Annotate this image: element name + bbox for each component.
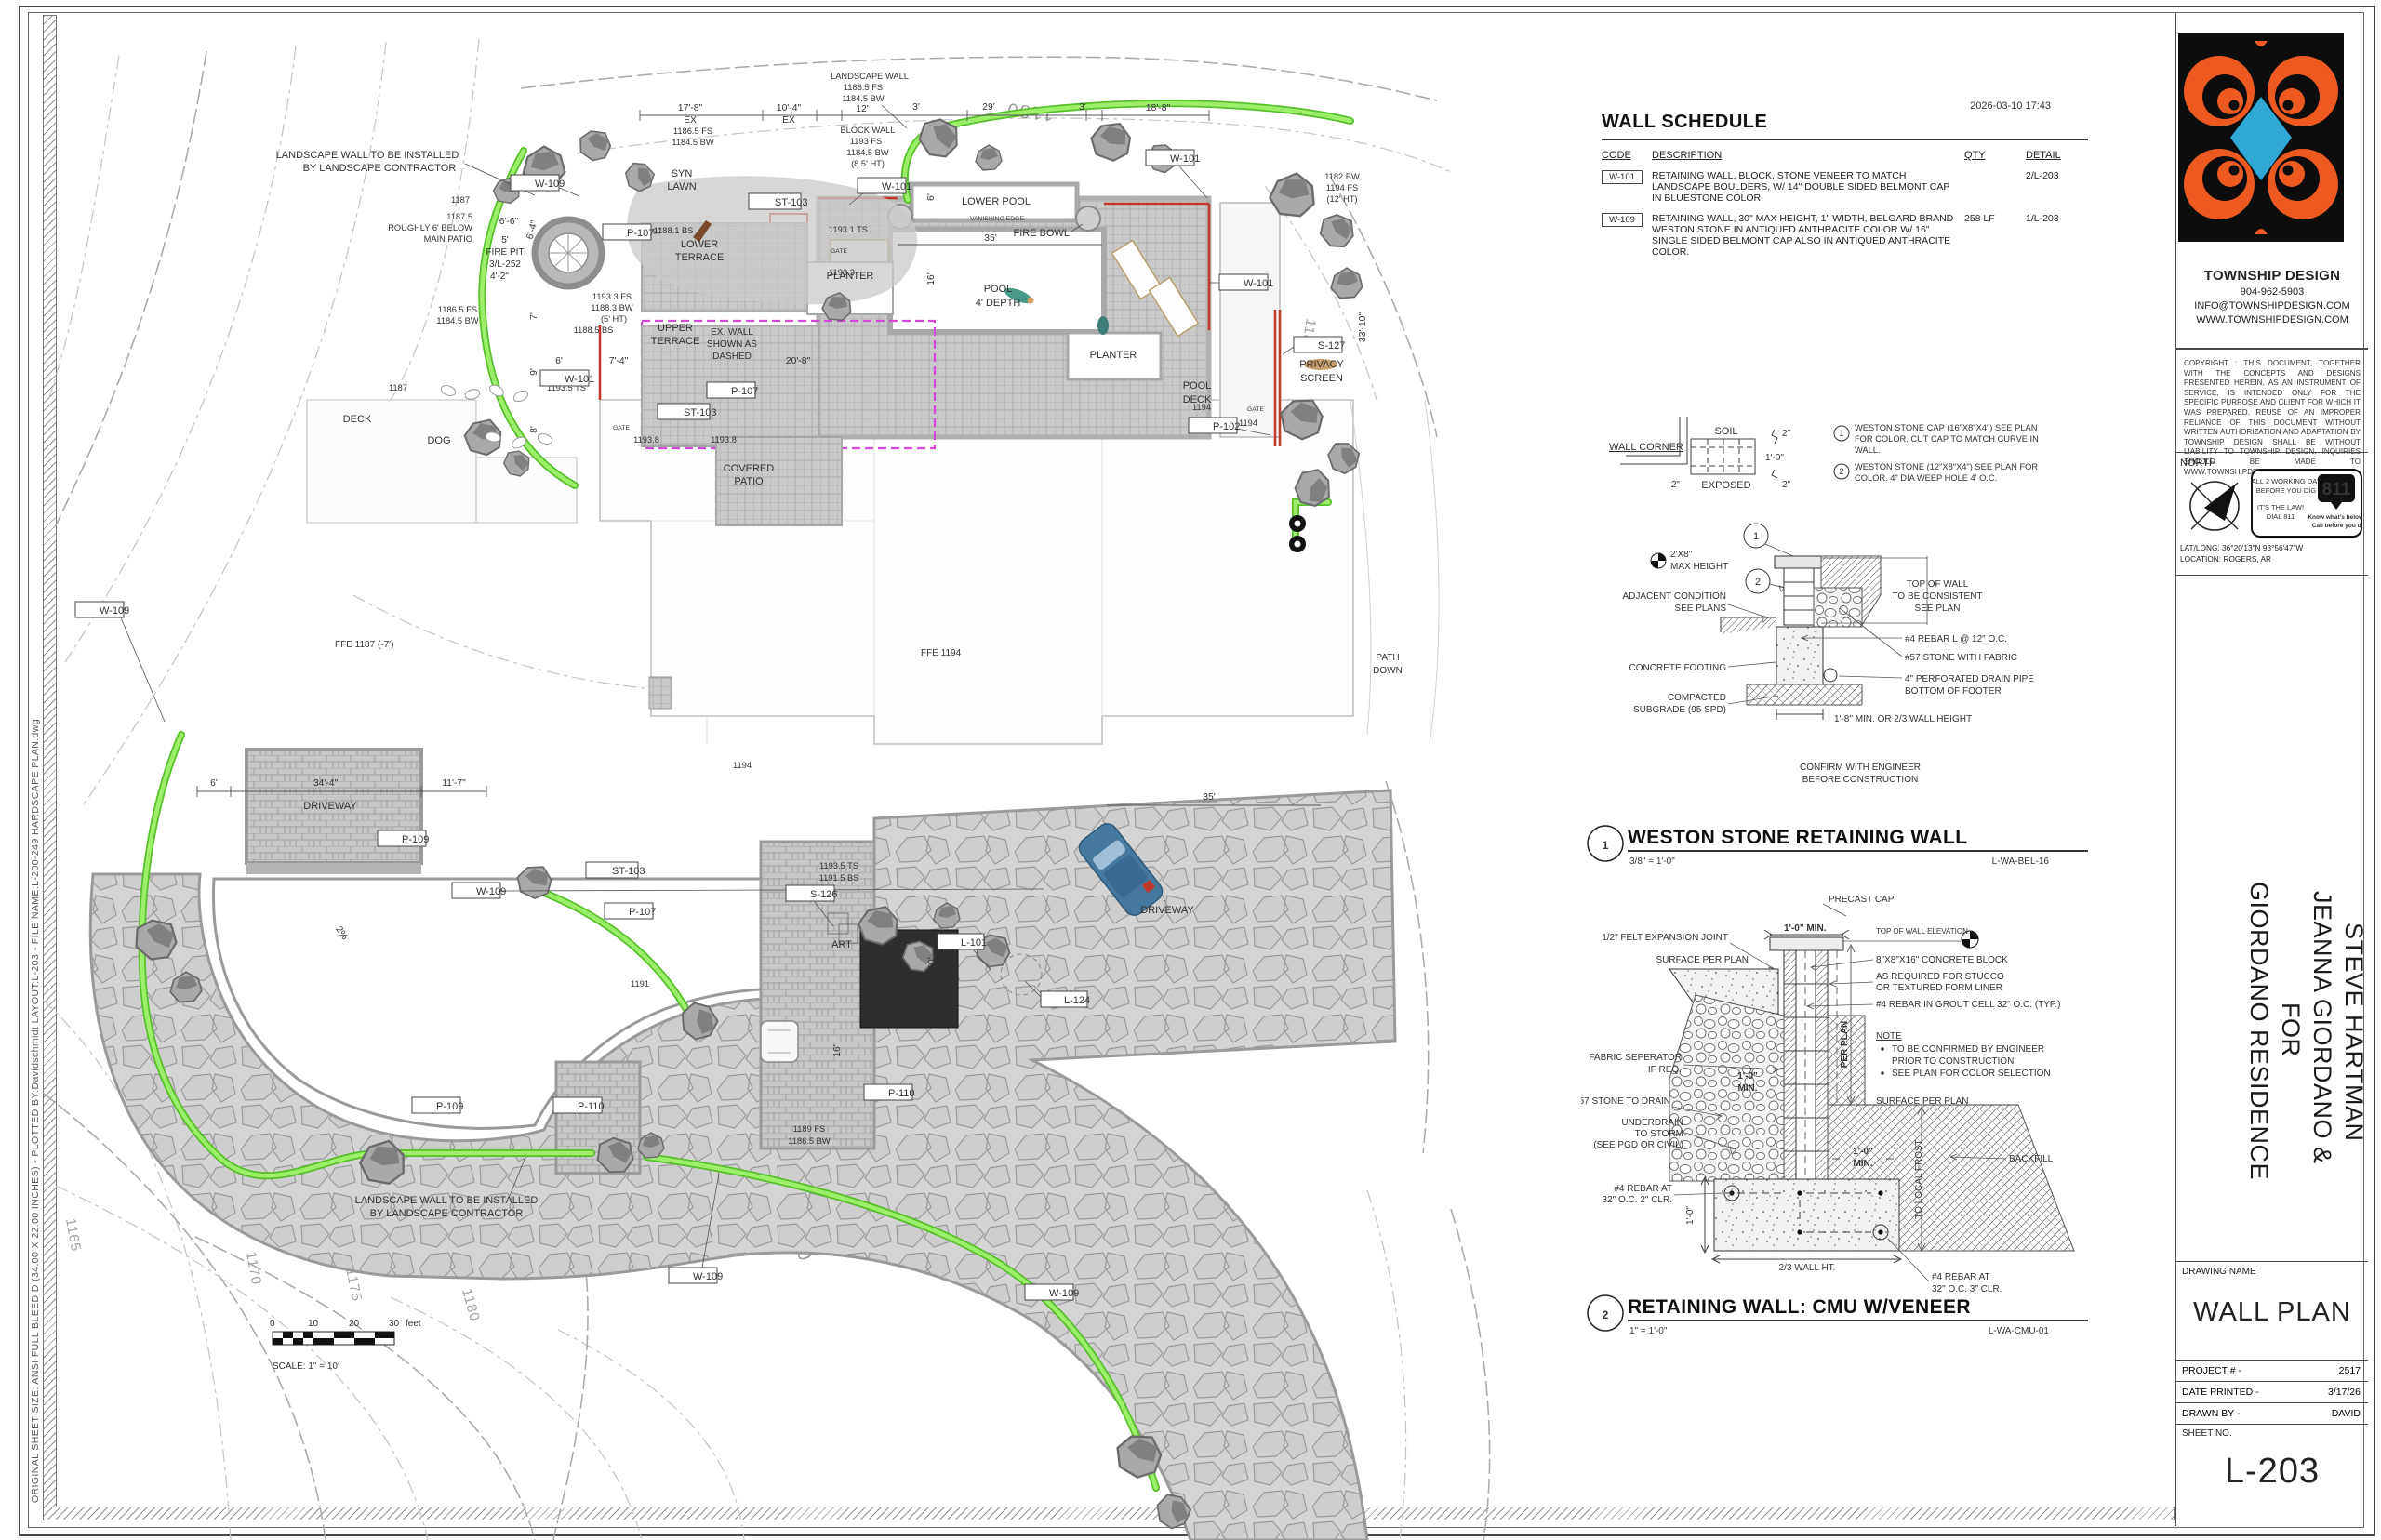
fire-pit-label: FIRE PIT	[486, 247, 524, 258]
label: SURFACE PER PLAN	[1656, 955, 1749, 965]
detail-scale: 3/8" = 1'-0"	[1629, 856, 1675, 867]
label: MIN.	[1737, 1083, 1757, 1094]
dim-label: 20'-8"	[786, 356, 811, 366]
dim-label: 35'	[1203, 792, 1215, 803]
label: 1'-0" MIN.	[1784, 923, 1827, 934]
area-label: SYN	[672, 168, 693, 179]
elev-label: 1184.5 BW	[436, 316, 479, 325]
note-text: WESTON STONE (12"X8"X4") SEE PLAN FOR	[1855, 462, 2038, 471]
area-label: UPPER	[658, 323, 693, 334]
label: BEFORE CONSTRUCTION	[1802, 775, 1918, 785]
dim-label: 1'-0"	[1765, 453, 1784, 463]
label: 1'-0"	[1737, 1071, 1758, 1082]
label: TO STORM	[1635, 1129, 1683, 1139]
label: CONFIRM WITH ENGINEER	[1800, 763, 1921, 773]
elev-label: 1186.5 FS	[438, 305, 477, 314]
landscape-wall-note: BY LANDSCAPE CONTRACTOR	[303, 163, 457, 174]
fire-bowl	[1076, 206, 1100, 231]
dim-label: 9'	[529, 368, 539, 376]
label: TO BE CONSISTENT	[1892, 591, 1982, 602]
elev-label: ROUGHLY 6' BELOW	[388, 223, 472, 232]
cmu-wall-detail: PRECAST CAP 1'-0" MIN. TOP OF WALL ELEVA…	[1581, 895, 2074, 1294]
wall-corner-detail: WALL CORNER SOIL EXPOSED 2" 1'-0" 2" 2" …	[1609, 417, 2039, 491]
dim-label: EX	[684, 115, 697, 126]
dim-label: 8'	[529, 426, 539, 433]
detail2-heading: 2 RETAINING WALL: CMU W/VENEER 1" = 1'-0…	[1588, 1295, 2088, 1336]
call-line: BEFORE YOU DIG	[2256, 486, 2317, 495]
row-detail: 1/L-203	[2026, 213, 2088, 258]
call-line: CALL 2 WORKING DAYS	[2251, 477, 2326, 485]
copyright-block: COPYRIGHT : THIS DOCUMENT, TOGETHER WITH…	[2176, 352, 2368, 453]
tag-p109[interactable]: P-109	[402, 834, 429, 845]
label: SUBGRADE (95 SPD)	[1633, 705, 1726, 715]
white-car	[761, 1021, 798, 1062]
tag-p107[interactable]: P-107	[731, 386, 758, 397]
callout-2: 2	[1755, 577, 1761, 588]
area-label: DECK	[343, 414, 372, 425]
elev-label: (5' HT)	[601, 314, 627, 324]
tag-p110[interactable]: P-110	[888, 1088, 915, 1099]
area-label: ART	[831, 939, 852, 950]
tag-st103[interactable]: ST-103	[684, 407, 716, 418]
note-text: COLOR. 4" DIA WEEP HOLE 4' O.C.	[1855, 473, 1997, 483]
tag-l101[interactable]: L-101	[961, 937, 987, 949]
label: TOP OF WALL ELEVATION	[1876, 927, 1968, 936]
driveway-flagstone	[90, 790, 1395, 1540]
tag-st103[interactable]: ST-103	[775, 197, 807, 208]
area-label: LOWER	[681, 239, 718, 250]
detail-number: 2	[1603, 1308, 1609, 1321]
area-label: DOG	[427, 435, 450, 446]
area-label: COVERED	[724, 463, 774, 474]
note-label: SHOWN AS	[707, 339, 757, 350]
area-label: LAWN	[667, 181, 696, 192]
label: PRECAST CAP	[1829, 895, 1895, 905]
label: IF REQ.	[1648, 1065, 1682, 1075]
elev-label: 1191.5 BS	[819, 873, 859, 883]
label: #57 STONE TO DRAIN	[1581, 1096, 1670, 1107]
note-text: FOR COLOR. CUT CAP TO MATCH CURVE IN	[1855, 434, 2039, 444]
col-description: DESCRIPTION	[1652, 150, 1957, 161]
contour-label: 1165	[62, 1217, 84, 1254]
dim-label: EX	[782, 115, 795, 126]
dim-label: 2"	[1671, 480, 1681, 490]
dim-label: 10'-4"	[777, 103, 802, 113]
tag-w109[interactable]: W-109	[535, 179, 565, 190]
area-label: 4' DEPTH	[976, 298, 1021, 309]
detail-title: WESTON STONE RETAINING WALL	[1628, 827, 1967, 848]
sheet-number-section: SHEET NO. L-203	[2176, 1424, 2368, 1526]
elev-label: MAIN PATIO	[424, 234, 472, 244]
scale-tick: 20	[349, 1319, 360, 1329]
scale-tick: 10	[308, 1319, 319, 1329]
client-name-line: GIORDANO RESIDENCE	[2244, 882, 2273, 1180]
detail-scale: 1" = 1'-0"	[1629, 1326, 1668, 1336]
elev-label: 1187	[389, 383, 407, 392]
elev-label: 1193.5 TS	[819, 861, 858, 870]
weston-stone-detail: 1 2 2'X8" MAX HEIGHT ADJACENT CONDITION …	[1623, 524, 2035, 785]
drawing-name: WALL PLAN	[2176, 1297, 2368, 1328]
label: 1'-0"	[1685, 1206, 1696, 1225]
label: SEE PLANS	[1674, 604, 1726, 614]
scale-tick: 30	[389, 1319, 400, 1329]
tag-l124[interactable]: L-124	[1064, 995, 1090, 1006]
label: BOTTOM OF FOOTER	[1905, 686, 2002, 697]
north-label: NORTH	[2180, 458, 2368, 469]
note-text: WALL.	[1855, 445, 1881, 455]
company-name: TOWNSHIP DESIGN	[2176, 268, 2368, 284]
label: MIN.	[1853, 1159, 1872, 1169]
tag-p107[interactable]: P-107	[627, 228, 654, 239]
fire-pit-label: 4'-2"	[490, 272, 509, 282]
drawn-row: DRAWN BY - DAVID	[2176, 1402, 2368, 1425]
scale-label: SCALE: 1" = 10'	[273, 1361, 339, 1372]
scale-bar: 0 10 20 30 feet SCALE: 1" = 10'	[270, 1319, 421, 1372]
label: UNDERDRAIN	[1621, 1118, 1683, 1128]
drawing-sheet: ORIGINAL SHEET SIZE: ANSI FULL BLEED D (…	[0, 0, 2381, 1540]
elev-label: 1191	[631, 979, 649, 989]
tag-w101[interactable]: W-101	[882, 181, 911, 192]
tag-p102[interactable]: P-102	[1213, 421, 1240, 432]
pool	[890, 230, 1104, 332]
landscape-wall-note: LANDSCAPE WALL TO BE INSTALLED	[276, 150, 459, 161]
dim-label: 7'-4"	[609, 356, 629, 366]
dim-label: 35'	[984, 233, 996, 244]
tag-p109[interactable]: P-109	[436, 1101, 463, 1112]
label: 1'-0"	[1853, 1147, 1873, 1157]
label: COMPACTED	[1668, 693, 1726, 703]
elev-label: 1186.5 FS	[844, 83, 883, 92]
company-logo	[2178, 33, 2344, 242]
contour-label: 1170	[243, 1251, 264, 1287]
dim-label: 16'	[926, 272, 937, 285]
landscape-wall-note: LANDSCAPE WALL TO BE INSTALLED	[355, 1195, 539, 1206]
label: 1/2" FELT EXPANSION JOINT	[1602, 933, 1728, 943]
detail1-heading: 1 WESTON STONE RETAINING WALL 3/8" = 1'-…	[1588, 826, 2088, 867]
tag-w101[interactable]: W-101	[1244, 278, 1273, 289]
call-811-badge: CALL 2 WORKING DAYS BEFORE YOU DIG IT'S …	[2251, 469, 2362, 538]
schedule-title: WALL SCHEDULE	[1602, 112, 2088, 140]
row-description: RETAINING WALL, BLOCK, STONE VENEER TO M…	[1652, 170, 1957, 204]
elev-label: 1184.5 BW	[842, 94, 885, 103]
gate-label: GATE	[1247, 406, 1264, 413]
exposed-label: EXPOSED	[1701, 480, 1750, 491]
client-name-line: JEANNA GIORDANO &	[2308, 891, 2336, 1164]
location: LOCATION: ROGERS, AR	[2180, 554, 2271, 564]
date-label: DATE PRINTED -	[2182, 1387, 2259, 1398]
drawn-label: DRAWN BY -	[2182, 1408, 2240, 1419]
dim-label: 11'-7"	[442, 778, 466, 789]
detail-ref: L-WA-CMU-01	[1989, 1326, 2050, 1336]
label: 32" O.C. 2" CLR.	[1603, 1195, 1672, 1205]
north-arrow-icon	[2182, 471, 2247, 536]
company-website[interactable]: WWW.TOWNSHIPDESIGN.COM	[2176, 314, 2368, 325]
elev-label: 1194 FS	[1326, 183, 1358, 192]
tag-w109[interactable]: W-109	[693, 1271, 723, 1282]
label: #4 REBAR AT	[1932, 1272, 1990, 1282]
site-plan: 1165 1170 1175 1180 1185 1190 1180 1185	[0, 0, 1600, 1540]
code-w101[interactable]: W-101	[1602, 170, 1643, 184]
elev-label: 1193.8	[711, 435, 737, 445]
dim-label: 12'	[856, 104, 868, 114]
dim-label: 6'	[555, 356, 563, 366]
scale-tick: 0	[270, 1319, 275, 1329]
area-label: PRIVACY	[1299, 359, 1344, 370]
elev-label: 1194	[1239, 418, 1257, 428]
area-label: FIRE BOWL	[1013, 228, 1070, 239]
elev-label: 1189 FS	[793, 1124, 825, 1134]
col-detail: DETAIL	[2026, 150, 2088, 161]
dim-label: 3'	[912, 102, 920, 113]
elev-label: 1188.5 BS	[574, 325, 614, 335]
date-row: DATE PRINTED - 3/17/26	[2176, 1381, 2368, 1403]
label: #4 REBAR L @ 12" O.C.	[1905, 634, 2007, 644]
area-label: PLANTER	[1090, 350, 1137, 361]
corner-title: WALL CORNER	[1609, 442, 1683, 453]
tag-w109[interactable]: W-109	[476, 886, 506, 897]
elev-label: 1187.5	[446, 212, 472, 221]
ffe-label: FFE 1194	[921, 648, 962, 658]
drawing-name-section: DRAWING NAME WALL PLAN	[2176, 1261, 2368, 1361]
landscape-wall-note: BY LANDSCAPE CONTRACTOR	[370, 1208, 524, 1219]
label: FABRIC SEPERATOR	[1589, 1053, 1682, 1063]
fire-pit-label: 5'	[501, 235, 509, 246]
label: OR TEXTURED FORM LINER	[1876, 983, 2002, 993]
drawn-by: DAVID	[2332, 1408, 2361, 1419]
company-phone[interactable]: 904-962-5903	[2176, 286, 2368, 298]
note-text: TO BE CONFIRMED BY ENGINEER	[1892, 1044, 2044, 1055]
detail-ref: L-WA-BEL-16	[1992, 856, 2050, 867]
elev-label: 1186.5 FS	[673, 126, 712, 136]
row-description: RETAINING WALL, 30" MAX HEIGHT, 1" WIDTH…	[1652, 213, 1957, 258]
code-w109[interactable]: W-109	[1602, 213, 1643, 227]
client-name-line: STEVE HARTMAN	[2339, 923, 2368, 1142]
elev-label: 1194	[1192, 403, 1211, 412]
label: (SEE PGD OR CIVIL)	[1593, 1140, 1683, 1150]
fire-pit-label: 3/L-252	[489, 259, 521, 270]
tag-w109[interactable]: W-109	[1049, 1288, 1079, 1299]
label: 1'-8" MIN. OR 2/3 WALL HEIGHT	[1834, 714, 1972, 724]
scale-unit: feet	[406, 1319, 421, 1329]
elev-label: 1182 BW	[1324, 172, 1360, 181]
dim-label: 2"	[1782, 429, 1791, 439]
note-head: NOTE	[1876, 1031, 1902, 1042]
tag-s127[interactable]: S-127	[1318, 340, 1345, 352]
elev-label: 1193.3	[829, 268, 855, 277]
label: PER PLAN	[1840, 1021, 1850, 1069]
project-label: PROJECT # -	[2182, 1365, 2241, 1376]
project-row: PROJECT # - 2517	[2176, 1360, 2368, 1382]
sheet-label: SHEET NO.	[2182, 1428, 2368, 1439]
area-label: TERRACE	[651, 336, 700, 347]
label: TOP OF WALL	[1907, 579, 1969, 590]
dim-label: 7'	[529, 312, 539, 320]
gate-label: GATE	[831, 248, 847, 255]
schedule-row[interactable]: W-109 RETAINING WALL, 30" MAX HEIGHT, 1"…	[1602, 213, 2088, 258]
area-label: DRIVEWAY	[303, 801, 357, 812]
date-printed: 3/17/26	[2328, 1387, 2361, 1398]
dim-label: 2"	[1782, 480, 1791, 490]
elev-label: LANDSCAPE WALL	[831, 72, 909, 81]
tag-p110[interactable]: P-110	[578, 1101, 605, 1112]
label: ADJACENT CONDITION	[1623, 591, 1727, 602]
elev-label: 1193 FS	[850, 137, 882, 146]
label: 2/3 WALL HT.	[1779, 1263, 1836, 1273]
label: #4 REBAR AT	[1614, 1184, 1672, 1194]
dim-label: 29'	[982, 102, 994, 113]
detail-number: 1	[1603, 839, 1609, 852]
elev-label: 1187	[451, 195, 470, 205]
elev-label: 1188.3 BW	[591, 303, 633, 312]
elev-label: 1194	[733, 761, 752, 770]
person-icon	[1097, 316, 1109, 335]
area-label: TERRACE	[675, 252, 725, 263]
elev-label: (12' HT)	[1326, 194, 1357, 204]
dim-label: 3'	[1079, 102, 1086, 113]
north-section: NORTH CALL 2 WORKING DAYS BEFORE YOU DIG…	[2176, 454, 2368, 576]
note-number: 2	[1839, 467, 1843, 476]
label: CONCRETE FOOTING	[1629, 663, 1727, 673]
client-name-line: FOR	[2276, 1002, 2305, 1057]
area-label: PATH	[1376, 653, 1399, 663]
note-label: DASHED	[712, 352, 752, 362]
detail-title: RETAINING WALL: CMU W/VENEER	[1628, 1296, 1971, 1318]
label: AS REQUIRED FOR STUCCO	[1876, 972, 2004, 982]
company-email[interactable]: INFO@TOWNSHIPDESIGN.COM	[2176, 300, 2368, 312]
ffe-label: FFE 1187 (-7')	[335, 640, 393, 650]
callout-1: 1	[1753, 531, 1759, 542]
badge-811: 811	[2322, 480, 2351, 499]
area-label: SCREEN	[1300, 373, 1343, 384]
row-qty	[1964, 170, 2018, 204]
elev-label: 1193.8	[633, 435, 659, 445]
call-line: IT'S THE LAW!	[2257, 503, 2304, 511]
area-label: POOL	[984, 284, 1013, 295]
contour-label: 1180	[459, 1287, 483, 1323]
note-text: SEE PLAN FOR COLOR SELECTION	[1892, 1069, 2051, 1079]
area-label: POOL	[1183, 380, 1212, 392]
label: 8"X8"X16" CONCRETE BLOCK	[1876, 955, 2008, 965]
tag-p107[interactable]: P-107	[629, 907, 656, 918]
drawing-name-label: DRAWING NAME	[2182, 1267, 2368, 1277]
tag-w109[interactable]: W-109	[100, 605, 129, 617]
latlong: LAT/LONG: 36°20'13"N 93°56'47"W	[2180, 543, 2303, 552]
dim-label: 33'-10"	[1358, 312, 1368, 342]
dim-label: 6'-6"	[499, 217, 519, 227]
schedule-header: CODE DESCRIPTION QTY DETAIL	[1602, 150, 2088, 161]
sheet-number: L-203	[2176, 1452, 2368, 1492]
label: 2'X8"	[1670, 550, 1693, 560]
row-detail: 2/L-203	[2026, 170, 2088, 204]
elev-label: 1193.3 FS	[592, 292, 632, 301]
badge-tagline: Know what's below.	[2308, 514, 2362, 521]
print-timestamp: 2026-03-10 17:43	[1970, 100, 2051, 112]
badge-tagline: Call before you dig.	[2312, 523, 2362, 529]
label: 32" O.C. 3" CLR.	[1932, 1284, 2002, 1294]
label: SEE PLAN	[1915, 604, 1961, 614]
schedule-row[interactable]: W-101 RETAINING WALL, BLOCK, STONE VENEE…	[1602, 170, 2088, 204]
label: 4" PERFORATED DRAIN PIPE	[1905, 674, 2034, 684]
elev-label: BLOCK WALL	[840, 126, 895, 135]
tag-w101[interactable]: W-101	[565, 374, 594, 385]
dim-label: 34'-4"	[313, 778, 339, 789]
tag-w101[interactable]: W-101	[1170, 153, 1200, 165]
call-line: DIAL 811	[2267, 512, 2295, 521]
area-label: PATIO	[734, 476, 764, 487]
label: BACKFILL	[2009, 1154, 2054, 1164]
project-number: 2517	[2339, 1365, 2361, 1376]
gate-label: GATE	[613, 425, 630, 431]
dim-label: 6'	[926, 193, 937, 201]
elev-label: 1186.5 BW	[788, 1136, 831, 1146]
col-qty: QTY	[1964, 150, 2018, 161]
tag-s126[interactable]: S-126	[810, 889, 837, 900]
elev-label: 1184.5 BW	[846, 148, 889, 157]
label: SURFACE PER PLAN	[1876, 1096, 1968, 1107]
note-number: 1	[1839, 429, 1843, 438]
dim-label: 6'	[210, 778, 218, 789]
soil-label: SOIL	[1714, 426, 1737, 437]
company-contact: TOWNSHIP DESIGN 904-962-5903 INFO@TOWNSH…	[2176, 249, 2368, 350]
label: TO LOCAL FROST	[1914, 1139, 1924, 1219]
note-label: EX. WALL	[711, 327, 753, 338]
wall-schedule: 2026-03-10 17:43 WALL SCHEDULE CODE DESC…	[1602, 89, 2088, 258]
label: #4 REBAR IN GROUT CELL 32" O.C. (TYP.)	[1876, 1000, 2060, 1010]
area-label: DRIVEWAY	[1140, 905, 1194, 916]
area-label: VANISHING EDGE	[970, 216, 1025, 222]
note-text: PRIOR TO CONSTRUCTION	[1892, 1056, 2014, 1067]
label: MAX HEIGHT	[1670, 562, 1728, 572]
area-label: DOWN	[1373, 666, 1403, 676]
row-qty: 258 LF	[1964, 213, 2018, 258]
tag-st103[interactable]: ST-103	[612, 866, 645, 877]
dim-label: 16'	[832, 1044, 843, 1056]
area-label: LOWER POOL	[962, 196, 1031, 207]
note-text: WESTON STONE CAP (16"X8"X4") SEE PLAN	[1855, 423, 2037, 432]
dim-label: 18'-8"	[1146, 103, 1171, 113]
dim-label: 17'-8"	[678, 103, 703, 113]
col-code: CODE	[1602, 150, 1644, 161]
label: #57 STONE WITH FABRIC	[1905, 653, 2017, 663]
elev-label: 1184.5 BW	[672, 138, 714, 147]
elev-label: (8.5' HT)	[851, 159, 885, 168]
elev-label: 1193.1 TS	[829, 225, 868, 234]
dim-label: 10'	[927, 957, 938, 969]
